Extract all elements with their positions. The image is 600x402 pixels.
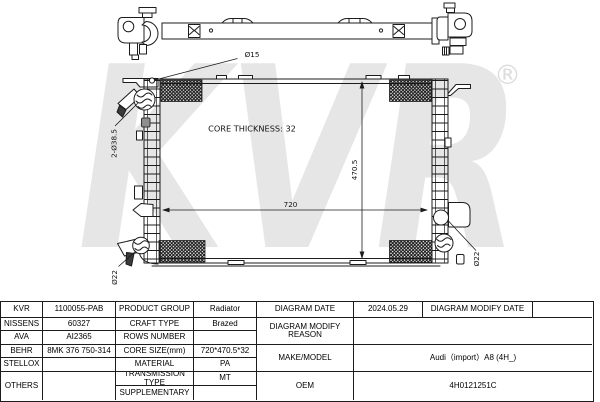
attr-label-transmission-type: TRANSMISSION TYPE — [115, 371, 193, 385]
attr-label-rows-number: ROWS NUMBER — [115, 330, 193, 344]
radiator-catalog-page: KVR ® — [0, 0, 600, 402]
diagram-modify-date-value — [532, 302, 592, 317]
make-model-value: Audi（import）A8 (4H_) — [353, 344, 592, 371]
brand-code-ava: AI2365 — [42, 330, 115, 344]
brand-code-nissens: 60327 — [42, 317, 115, 330]
bottom-right-port-dimension-label: Ø22 — [472, 252, 481, 267]
brand-name-behr: BEHR — [1, 344, 42, 357]
brand-code-stellox — [42, 357, 115, 371]
diagram-date-label: DIAGRAM DATE — [256, 302, 353, 317]
top-hole-dimension-label: Ø15 — [245, 50, 260, 59]
attr-value-rows-number — [193, 330, 256, 344]
oem-value: 4H0121251C — [353, 371, 592, 400]
attr-value-product-group: Radiator — [193, 302, 256, 317]
brand-name-kvr: KVR — [1, 302, 42, 317]
radiator-technical-drawing: KVR ® — [0, 0, 600, 302]
mounting-hole-15 — [149, 78, 154, 83]
brand-code-behr: 8MK 376 750-314 — [42, 344, 115, 357]
mounting-clip-left — [189, 25, 201, 38]
brand-code-kvr: 1100055-PAB — [42, 302, 115, 317]
diagram-modify-reason-label: DIAGRAM MODIFY REASON — [256, 317, 353, 344]
brand-name-stellox: STELLOX — [1, 357, 42, 371]
attr-label-craft-type: CRAFT TYPE — [115, 317, 193, 330]
attr-value-core-size: 720*470.5*32 — [193, 344, 256, 357]
attr-label-product-group: PRODUCT GROUP — [115, 302, 193, 317]
diagram-modify-date-label: DIAGRAM MODIFY DATE — [422, 302, 532, 317]
watermark-registered-icon: ® — [494, 60, 521, 91]
brand-name-nissens: NISSENS — [1, 317, 42, 330]
diagram-date-value: 2024.05.29 — [353, 302, 422, 317]
make-model-label: MAKE/MODEL — [256, 344, 353, 371]
diagram-modify-reason-value — [353, 317, 592, 344]
oem-label: OEM — [256, 371, 353, 400]
left-ports-dimension-label: 2-Ø38.5 — [110, 129, 119, 158]
attr-label-material: MATERIAL — [115, 357, 193, 371]
attr-label-supplementary: SUPPLEMENTARY — [115, 385, 193, 400]
attr-value-supplementary — [193, 385, 256, 400]
spec-table: KVR 1100055-PAB PRODUCT GROUP Radiator D… — [0, 301, 594, 402]
height-dimension-label: 470.5 — [350, 160, 359, 181]
brand-code-others — [42, 371, 115, 400]
attr-value-material: PA — [193, 357, 256, 371]
bottom-left-port-dimension-label: Ø22 — [110, 270, 119, 285]
core-thickness-label: CORE THICKNESS: 32 — [208, 124, 296, 134]
brand-name-others: OTHERS — [1, 371, 42, 400]
attr-value-craft-type: Brazed — [193, 317, 256, 330]
attr-label-core-size: CORE SIZE(mm) — [115, 344, 193, 357]
attr-value-transmission-type: MT — [193, 371, 256, 385]
width-dimension-label: 720 — [284, 200, 298, 209]
brand-name-ava: AVA — [1, 330, 42, 344]
mounting-clip-right — [393, 25, 405, 38]
